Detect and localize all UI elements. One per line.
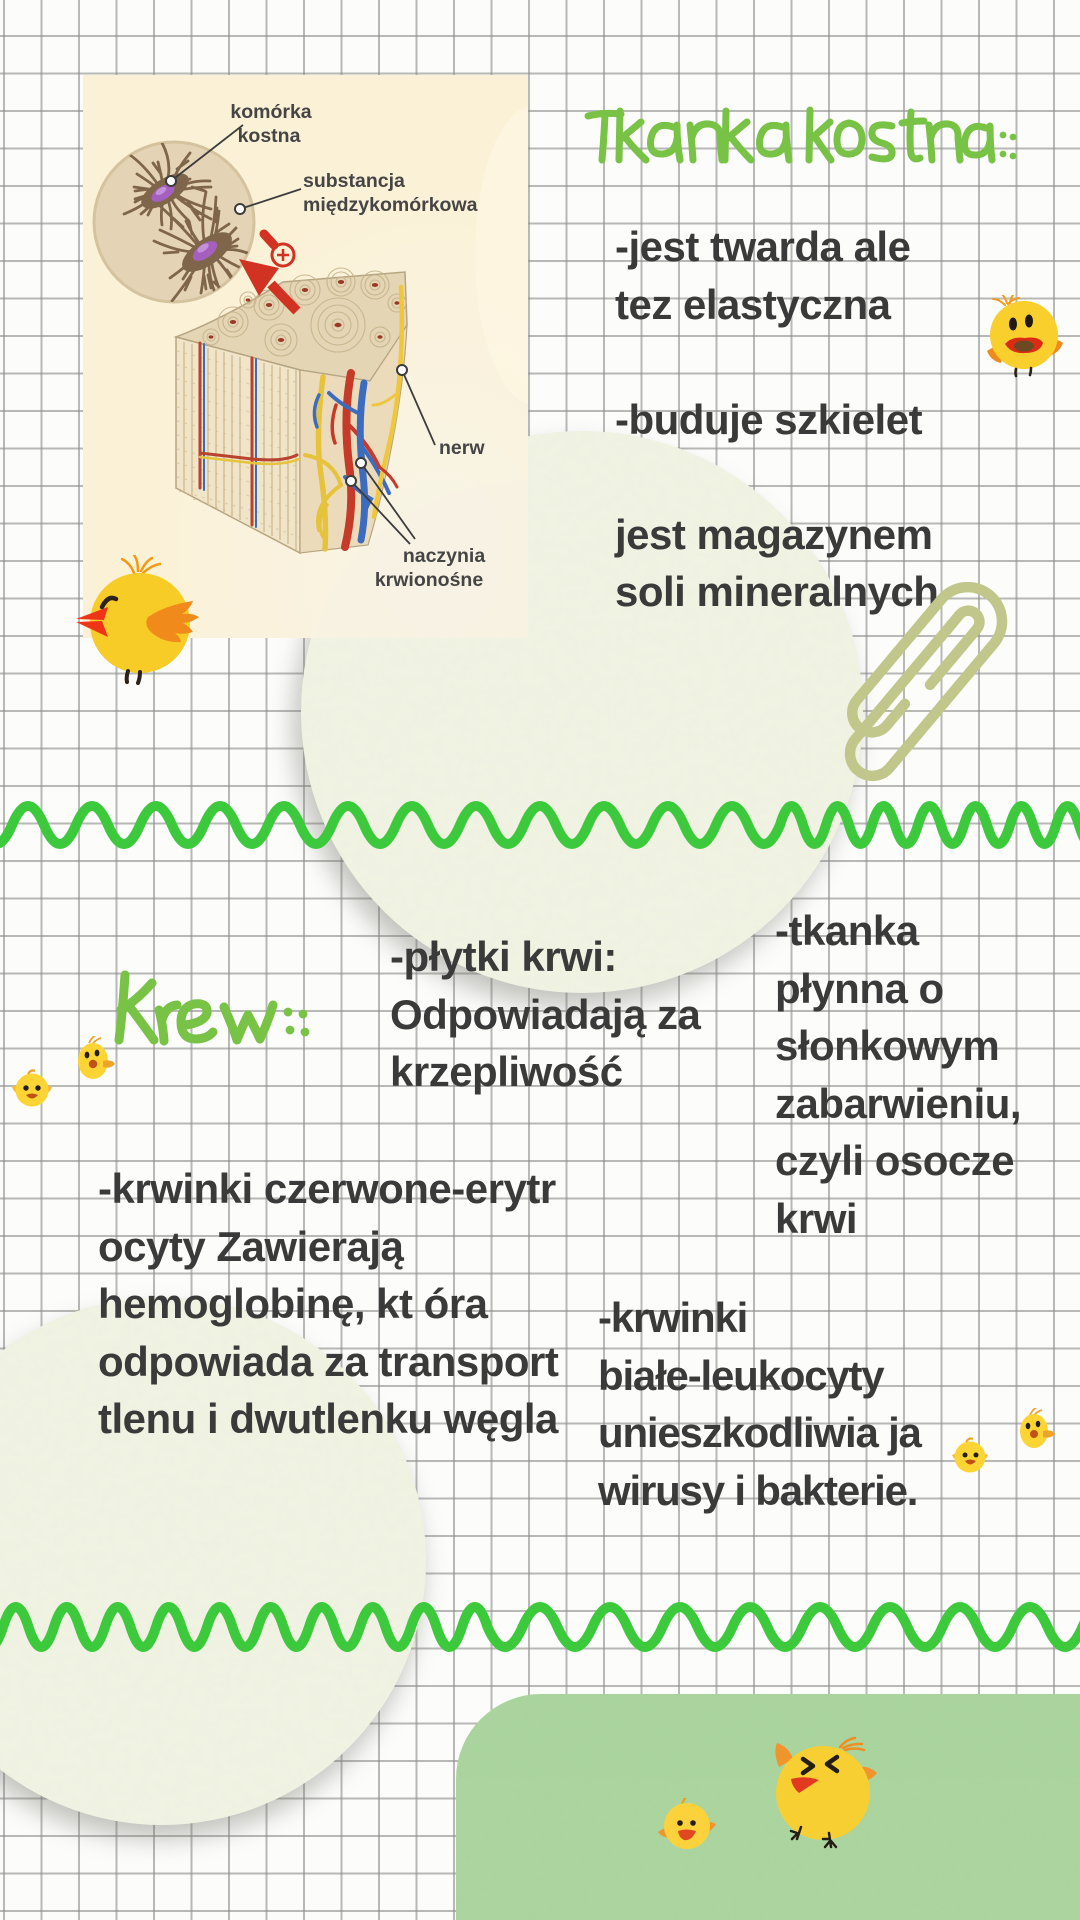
svg-text:substancja: substancja [303,170,405,192]
svg-text:krwionośne: krwionośne [375,569,484,591]
svg-text:kostna: kostna [238,125,301,147]
svg-text:międzykomórkowa: międzykomórkowa [303,194,478,216]
svg-text:naczynia: naczynia [403,545,486,567]
svg-text:komórka: komórka [230,101,311,123]
svg-text:nerw: nerw [439,437,485,459]
